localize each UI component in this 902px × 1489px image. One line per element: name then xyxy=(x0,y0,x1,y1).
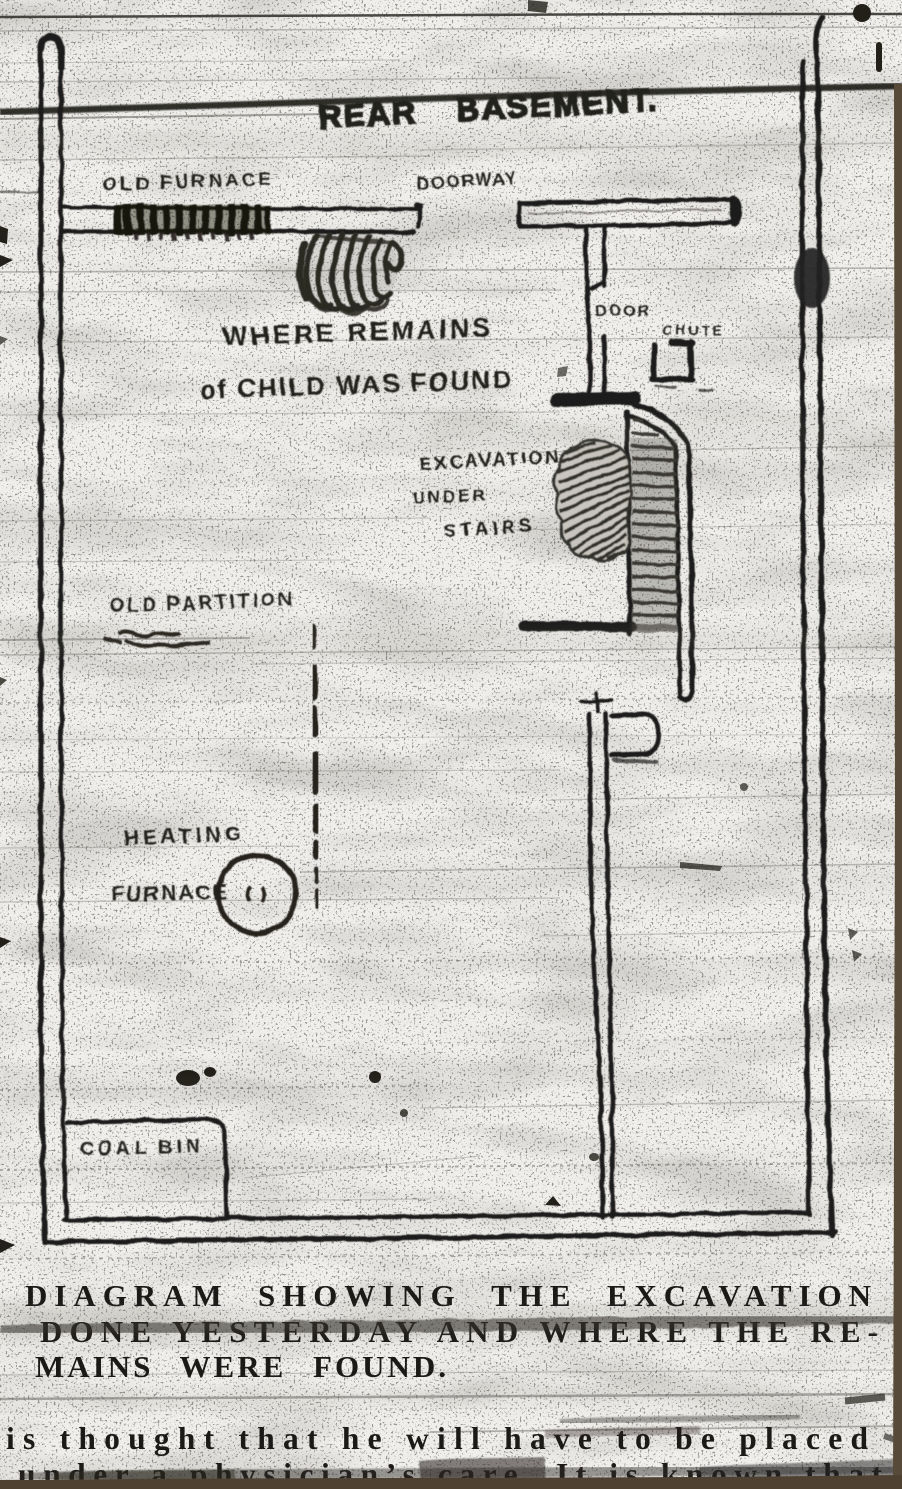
svg-text:CHUTE: CHUTE xyxy=(662,322,725,338)
svg-text:HEATING: HEATING xyxy=(123,823,245,850)
svg-text:is thought that he will have t: is thought that he will have to be place… xyxy=(6,1421,868,1456)
svg-text:UNDER: UNDER xyxy=(412,485,488,508)
svg-text:FURNACE: FURNACE xyxy=(112,881,229,906)
svg-text:MAINS WERE FOUND.: MAINS WERE FOUND. xyxy=(35,1349,449,1384)
svg-text:COAL BIN: COAL BIN xyxy=(80,1137,204,1160)
svg-text:DOOR: DOOR xyxy=(595,303,651,320)
